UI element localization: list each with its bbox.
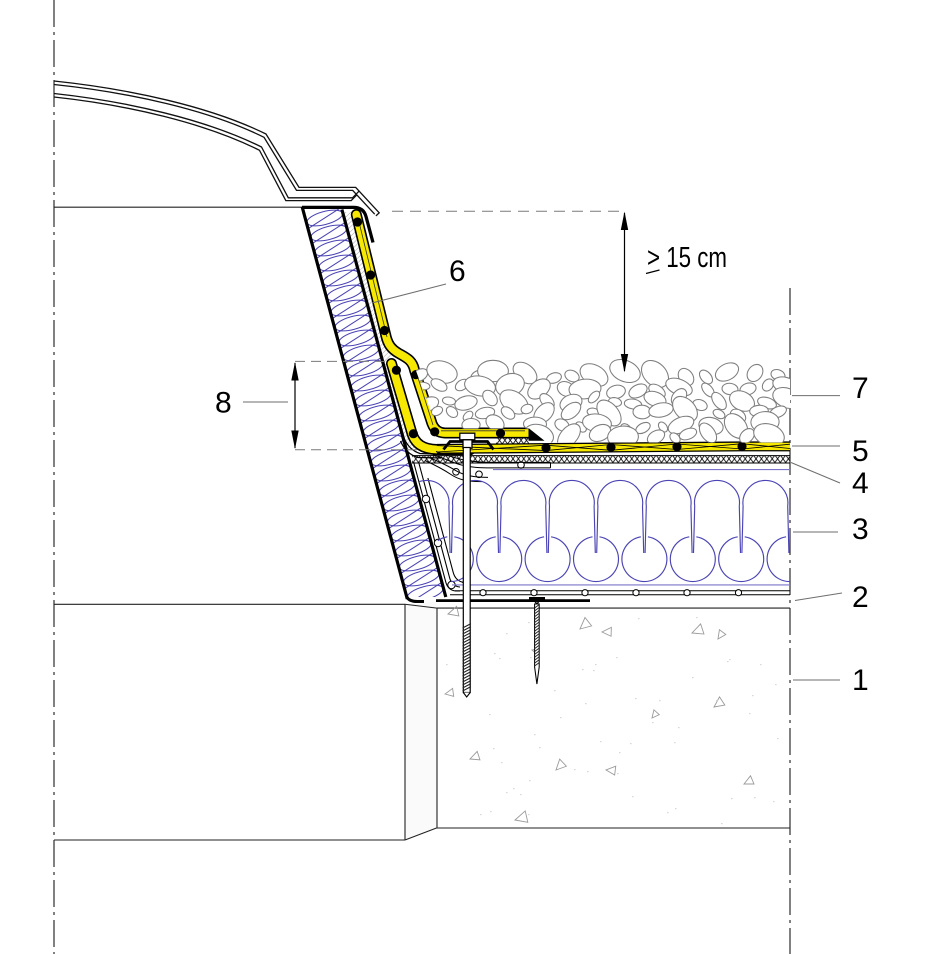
- svg-text:1: 1: [852, 664, 869, 697]
- svg-text:2: 2: [852, 581, 869, 614]
- svg-text:3: 3: [852, 513, 869, 546]
- svg-text:> 15 cm: > 15 cm: [647, 242, 727, 274]
- svg-text:6: 6: [449, 255, 466, 288]
- svg-text:4: 4: [852, 467, 869, 500]
- svg-text:5: 5: [852, 435, 869, 468]
- svg-text:7: 7: [852, 372, 869, 405]
- svg-text:8: 8: [215, 387, 232, 420]
